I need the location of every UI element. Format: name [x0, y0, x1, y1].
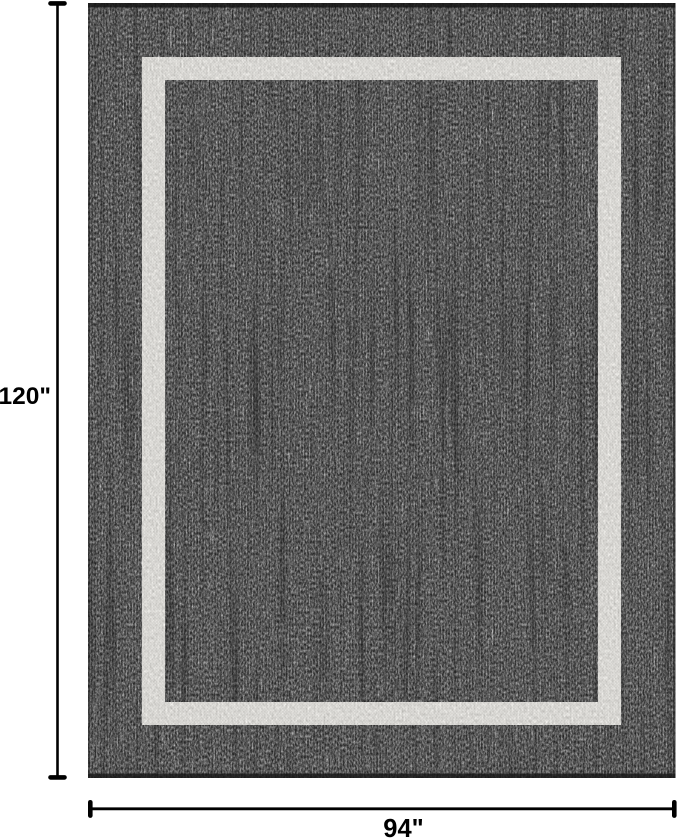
svg-text:94": 94" — [383, 815, 423, 838]
svg-text:120": 120" — [0, 383, 51, 410]
